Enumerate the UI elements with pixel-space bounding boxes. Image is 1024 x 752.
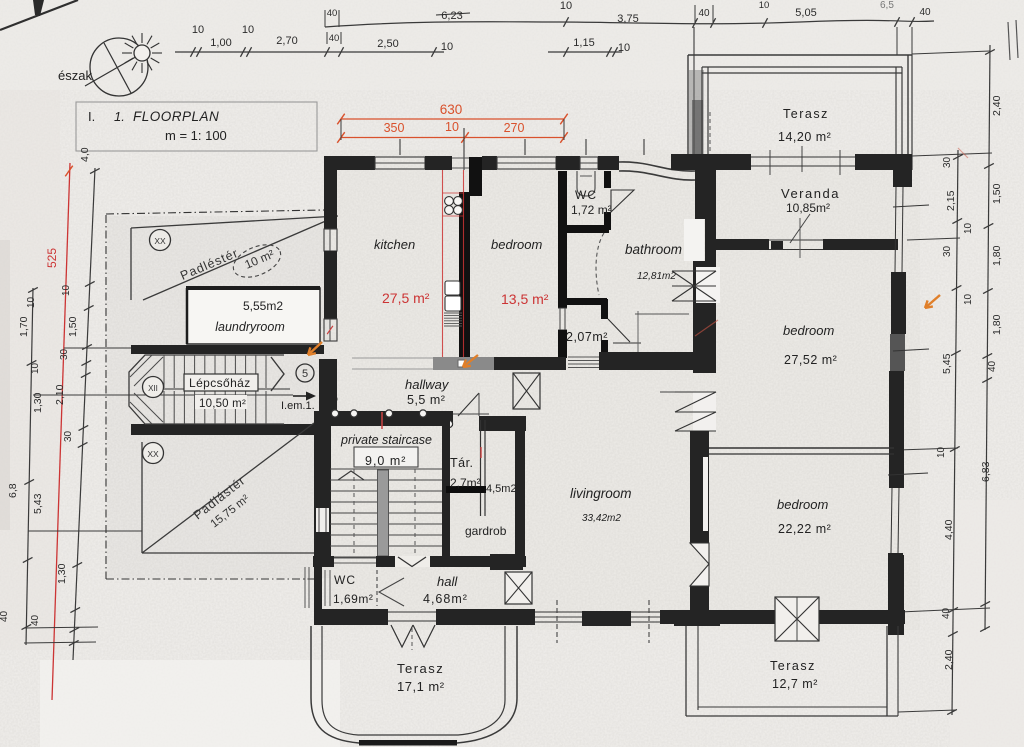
svg-text:hallway: hallway: [405, 377, 450, 392]
svg-text:4,5m2: 4,5m2: [486, 483, 517, 495]
svg-text:40: 40: [327, 8, 338, 19]
svg-text:Terasz: Terasz: [783, 107, 829, 121]
svg-text:I.: I.: [88, 109, 95, 124]
svg-text:1,50: 1,50: [67, 316, 79, 337]
svg-text:1,15: 1,15: [573, 37, 594, 49]
svg-text:2,7m²: 2,7m²: [450, 476, 481, 490]
svg-text:kitchen: kitchen: [374, 237, 415, 252]
svg-text:hall: hall: [437, 574, 458, 589]
svg-text:5,05: 5,05: [795, 7, 816, 19]
svg-text:1,00: 1,00: [210, 37, 231, 49]
svg-text:livingroom: livingroom: [570, 486, 632, 501]
svg-text:2,40: 2,40: [991, 95, 1003, 116]
svg-text:Tár.: Tár.: [450, 456, 474, 470]
svg-text:30: 30: [942, 156, 953, 168]
svg-text:5,45: 5,45: [941, 353, 953, 374]
svg-text:észak: észak: [58, 68, 92, 83]
svg-text:10: 10: [441, 41, 453, 53]
svg-text:2,40: 2,40: [943, 649, 955, 670]
svg-text:33,42m2: 33,42m2: [582, 513, 621, 524]
svg-text:30: 30: [63, 430, 74, 442]
svg-text:Lépcsőház: Lépcsőház: [189, 376, 251, 390]
svg-text:4,0: 4,0: [79, 147, 91, 162]
svg-text:10: 10: [192, 24, 204, 36]
svg-text:2,50: 2,50: [377, 38, 398, 50]
svg-text:10,50 m²: 10,50 m²: [199, 398, 246, 410]
svg-text:10: 10: [30, 362, 41, 374]
svg-text:40: 40: [987, 360, 998, 372]
svg-text:1,50: 1,50: [991, 183, 1003, 204]
svg-text:5,43: 5,43: [32, 493, 44, 514]
svg-text:10: 10: [618, 42, 630, 54]
svg-text:FLOORPLAN: FLOORPLAN: [133, 109, 219, 124]
svg-text:2,07m²: 2,07m²: [566, 330, 608, 344]
svg-text:bedroom: bedroom: [783, 323, 834, 338]
svg-text:I.em.1.: I.em.1.: [281, 400, 315, 412]
svg-text:40: 40: [0, 610, 10, 622]
svg-text:10: 10: [560, 0, 572, 12]
svg-text:XII: XII: [148, 384, 158, 393]
svg-text:laundryroom: laundryroom: [215, 320, 284, 334]
svg-text:1,72 m²: 1,72 m²: [571, 203, 612, 217]
svg-text:m = 1: 100: m = 1: 100: [165, 128, 227, 143]
svg-text:10: 10: [242, 24, 254, 36]
svg-text:630: 630: [440, 102, 463, 117]
svg-text:27,5 m²: 27,5 m²: [382, 290, 430, 306]
svg-text:40: 40: [941, 607, 952, 619]
svg-text:5: 5: [302, 368, 308, 380]
svg-text:525: 525: [45, 248, 59, 268]
svg-text:40: 40: [329, 33, 340, 44]
svg-text:10: 10: [61, 284, 72, 296]
svg-text:2,70: 2,70: [276, 35, 297, 47]
svg-text:4,40: 4,40: [943, 519, 955, 540]
svg-text:10,85m²: 10,85m²: [786, 201, 830, 215]
svg-text:Terasz: Terasz: [770, 659, 816, 673]
svg-text:6,8: 6,8: [7, 483, 19, 498]
svg-text:3,75: 3,75: [617, 13, 638, 25]
svg-text:6,5: 6,5: [880, 0, 894, 11]
svg-text:private staircase: private staircase: [340, 433, 432, 447]
svg-text:12,7 m²: 12,7 m²: [772, 677, 818, 691]
svg-text:XX: XX: [154, 236, 166, 246]
svg-text:27,52 m²: 27,52 m²: [784, 353, 837, 367]
svg-text:1.: 1.: [114, 109, 125, 124]
svg-text:10: 10: [963, 222, 974, 234]
svg-text:40: 40: [30, 614, 41, 626]
svg-text:Terasz: Terasz: [397, 661, 444, 676]
svg-text:10: 10: [26, 296, 37, 308]
svg-text:bathroom: bathroom: [625, 242, 682, 257]
svg-text:30: 30: [942, 245, 953, 257]
svg-text:14,20 m²: 14,20 m²: [778, 130, 831, 144]
svg-text:5,5 m²: 5,5 m²: [407, 393, 445, 407]
svg-text:17,1 m²: 17,1 m²: [397, 679, 445, 694]
svg-text:1,80: 1,80: [991, 314, 1003, 335]
svg-text:12,81m2: 12,81m2: [637, 271, 676, 282]
svg-text:10: 10: [963, 293, 974, 305]
svg-text:Veranda: Veranda: [781, 186, 840, 201]
svg-text:10: 10: [445, 120, 459, 134]
svg-text:5,55m2: 5,55m2: [243, 299, 283, 313]
svg-text:350: 350: [384, 121, 405, 135]
svg-text:XX: XX: [147, 449, 159, 459]
svg-text:bedroom: bedroom: [777, 497, 828, 512]
svg-text:WC: WC: [334, 573, 356, 587]
svg-text:1,69m²: 1,69m²: [333, 592, 373, 606]
svg-text:1,70: 1,70: [18, 316, 30, 337]
svg-text:30: 30: [59, 348, 70, 360]
svg-text:WC: WC: [575, 188, 597, 202]
svg-text:9,0 m²: 9,0 m²: [365, 454, 406, 468]
svg-text:40: 40: [919, 7, 931, 18]
svg-text:bedroom: bedroom: [491, 237, 542, 252]
svg-text:270: 270: [504, 121, 525, 135]
svg-text:1,30: 1,30: [56, 563, 68, 584]
svg-text:6,83: 6,83: [980, 461, 992, 482]
svg-text:13,5 m²: 13,5 m²: [501, 291, 549, 307]
svg-text:gardrob: gardrob: [465, 524, 507, 538]
svg-text:10: 10: [759, 0, 770, 11]
svg-text:2,15: 2,15: [945, 190, 957, 211]
svg-text:4,68m²: 4,68m²: [423, 592, 468, 606]
svg-text:22,22 m²: 22,22 m²: [778, 522, 831, 536]
svg-text:40: 40: [698, 8, 710, 19]
svg-text:6,23: 6,23: [441, 10, 462, 22]
svg-text:1,80: 1,80: [991, 245, 1003, 266]
